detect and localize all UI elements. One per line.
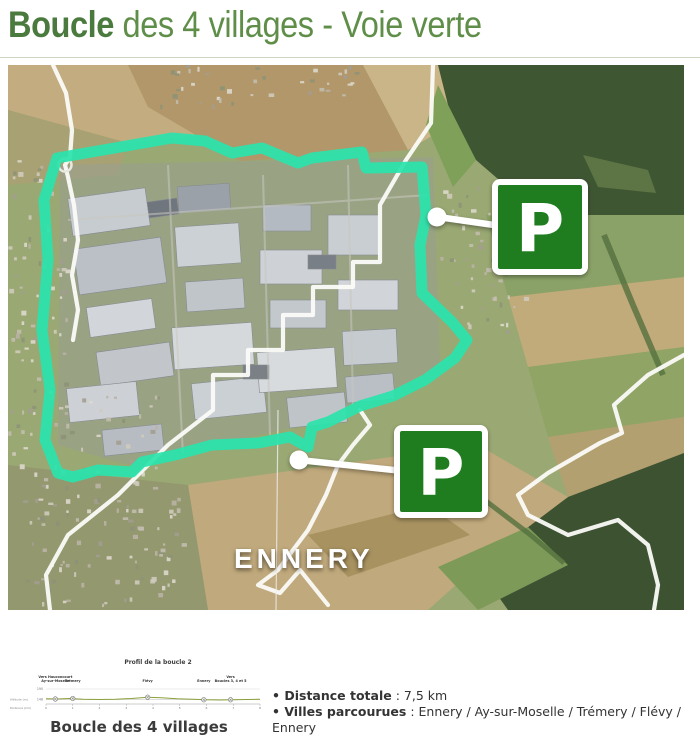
svg-text:0: 0 (45, 706, 47, 710)
figure-caption: Boucle des 4 villages (8, 718, 270, 736)
elevation-profile-figure: 012345678190148Altitude (m)Distance (km)… (8, 656, 270, 736)
svg-text:Altitude (m): Altitude (m) (10, 698, 28, 702)
detail-distance-label: Distance totale (284, 688, 391, 703)
svg-text:Flévy: Flévy (143, 679, 154, 683)
page-title-rest: des 4 villages - Voie verte (114, 4, 482, 45)
parking-sign-1: P (495, 182, 585, 272)
svg-text:1: 1 (72, 706, 74, 710)
route-marker-dot-2 (290, 451, 309, 470)
parking-sign-2: P (397, 428, 485, 515)
town-label: ENNERY (234, 543, 374, 574)
profile-chart-svg: 012345678190148Altitude (m)Distance (km)… (8, 656, 270, 714)
svg-text:4: 4 (152, 706, 154, 710)
svg-text:6: 6 (206, 706, 208, 710)
parking-icon: P (418, 437, 465, 511)
page-title-bold: Boucle (8, 4, 114, 45)
details-list: Distance totale : 7,5 km Villes parcouru… (272, 688, 698, 736)
route-details: Distance totale : 7,5 km Villes parcouru… (272, 688, 698, 736)
route-marker-dot-1 (428, 208, 447, 227)
detail-villages: Villes parcourues : Ennery / Ay-sur-Mose… (272, 704, 698, 736)
svg-text:Profil de la boucle 2: Profil de la boucle 2 (124, 659, 191, 666)
svg-text:Trémery: Trémery (65, 679, 81, 683)
svg-text:5: 5 (179, 706, 181, 710)
svg-text:3: 3 (125, 706, 127, 710)
detail-villages-label: Villes parcourues (284, 704, 406, 719)
page: Boucle des 4 villages - Voie verte (0, 0, 700, 747)
route-map: P P ENNERY (8, 65, 684, 610)
satellite-map: P P ENNERY (8, 65, 684, 610)
svg-text:7: 7 (232, 706, 234, 710)
page-title: Boucle des 4 villages - Voie verte (8, 4, 610, 46)
svg-text:Boucles 3, 4 et 5: Boucles 3, 4 et 5 (215, 679, 247, 683)
svg-text:2: 2 (99, 706, 101, 710)
svg-text:Ennery: Ennery (197, 679, 211, 683)
title-divider (0, 57, 700, 58)
detail-distance: Distance totale : 7,5 km (272, 688, 698, 704)
detail-distance-value: : 7,5 km (392, 688, 447, 703)
parking-icon: P (516, 190, 564, 267)
svg-text:190: 190 (37, 687, 43, 691)
svg-text:148: 148 (37, 698, 43, 702)
svg-text:Distance (km): Distance (km) (10, 706, 31, 710)
svg-text:8: 8 (259, 706, 261, 710)
